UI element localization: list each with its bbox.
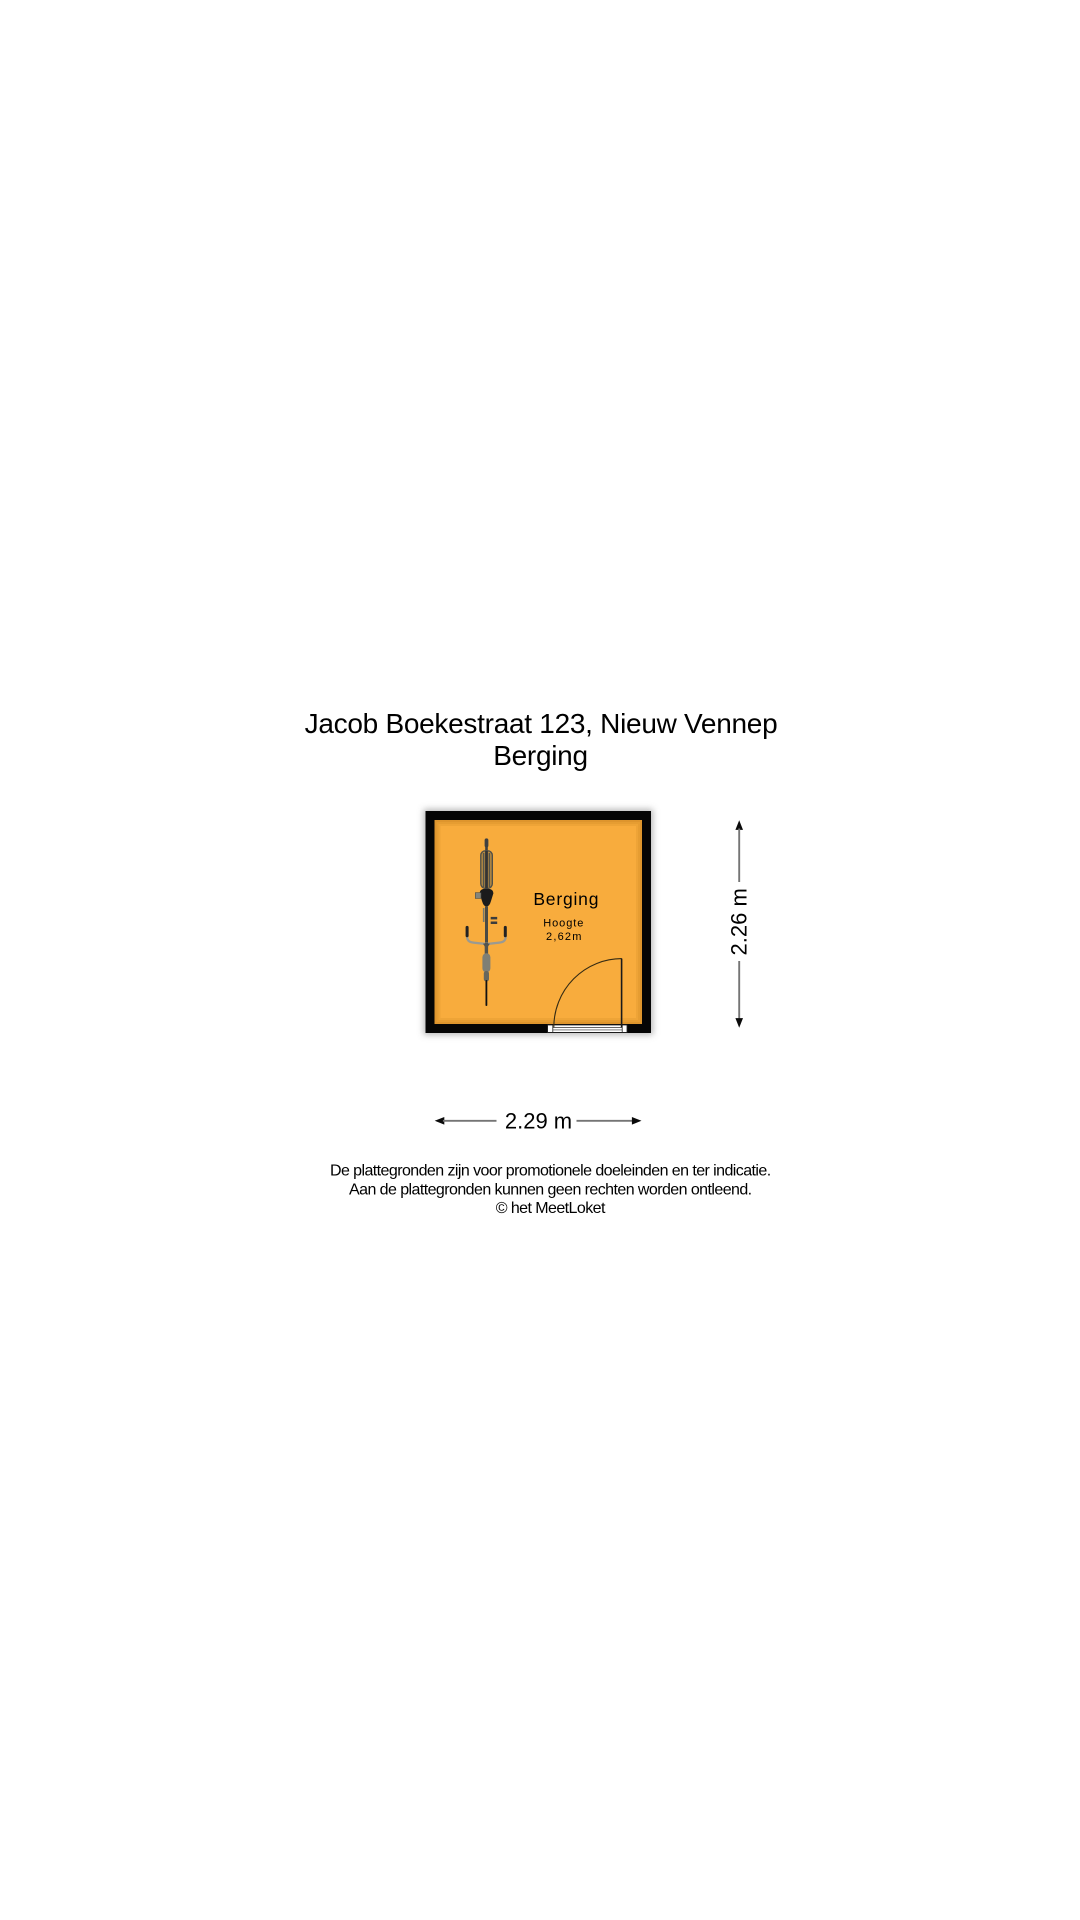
svg-text:Hoogte: Hoogte <box>543 918 584 930</box>
svg-text:2,62m: 2,62m <box>546 931 583 943</box>
svg-text:Jacob Boekestraat 123, Nieuw V: Jacob Boekestraat 123, Nieuw Vennep <box>305 708 778 739</box>
svg-text:2.26 m: 2.26 m <box>727 888 752 955</box>
svg-text:Berging: Berging <box>533 889 599 909</box>
svg-text:2.29 m: 2.29 m <box>505 1109 572 1134</box>
svg-text:© het MeetLoket: © het MeetLoket <box>496 1200 606 1217</box>
svg-text:Aan de plattegronden kunnen ge: Aan de plattegronden kunnen geen rechten… <box>349 1181 752 1198</box>
svg-text:De plattegronden zijn voor pro: De plattegronden zijn voor promotionele … <box>330 1162 771 1179</box>
svg-text:Berging: Berging <box>493 740 588 771</box>
